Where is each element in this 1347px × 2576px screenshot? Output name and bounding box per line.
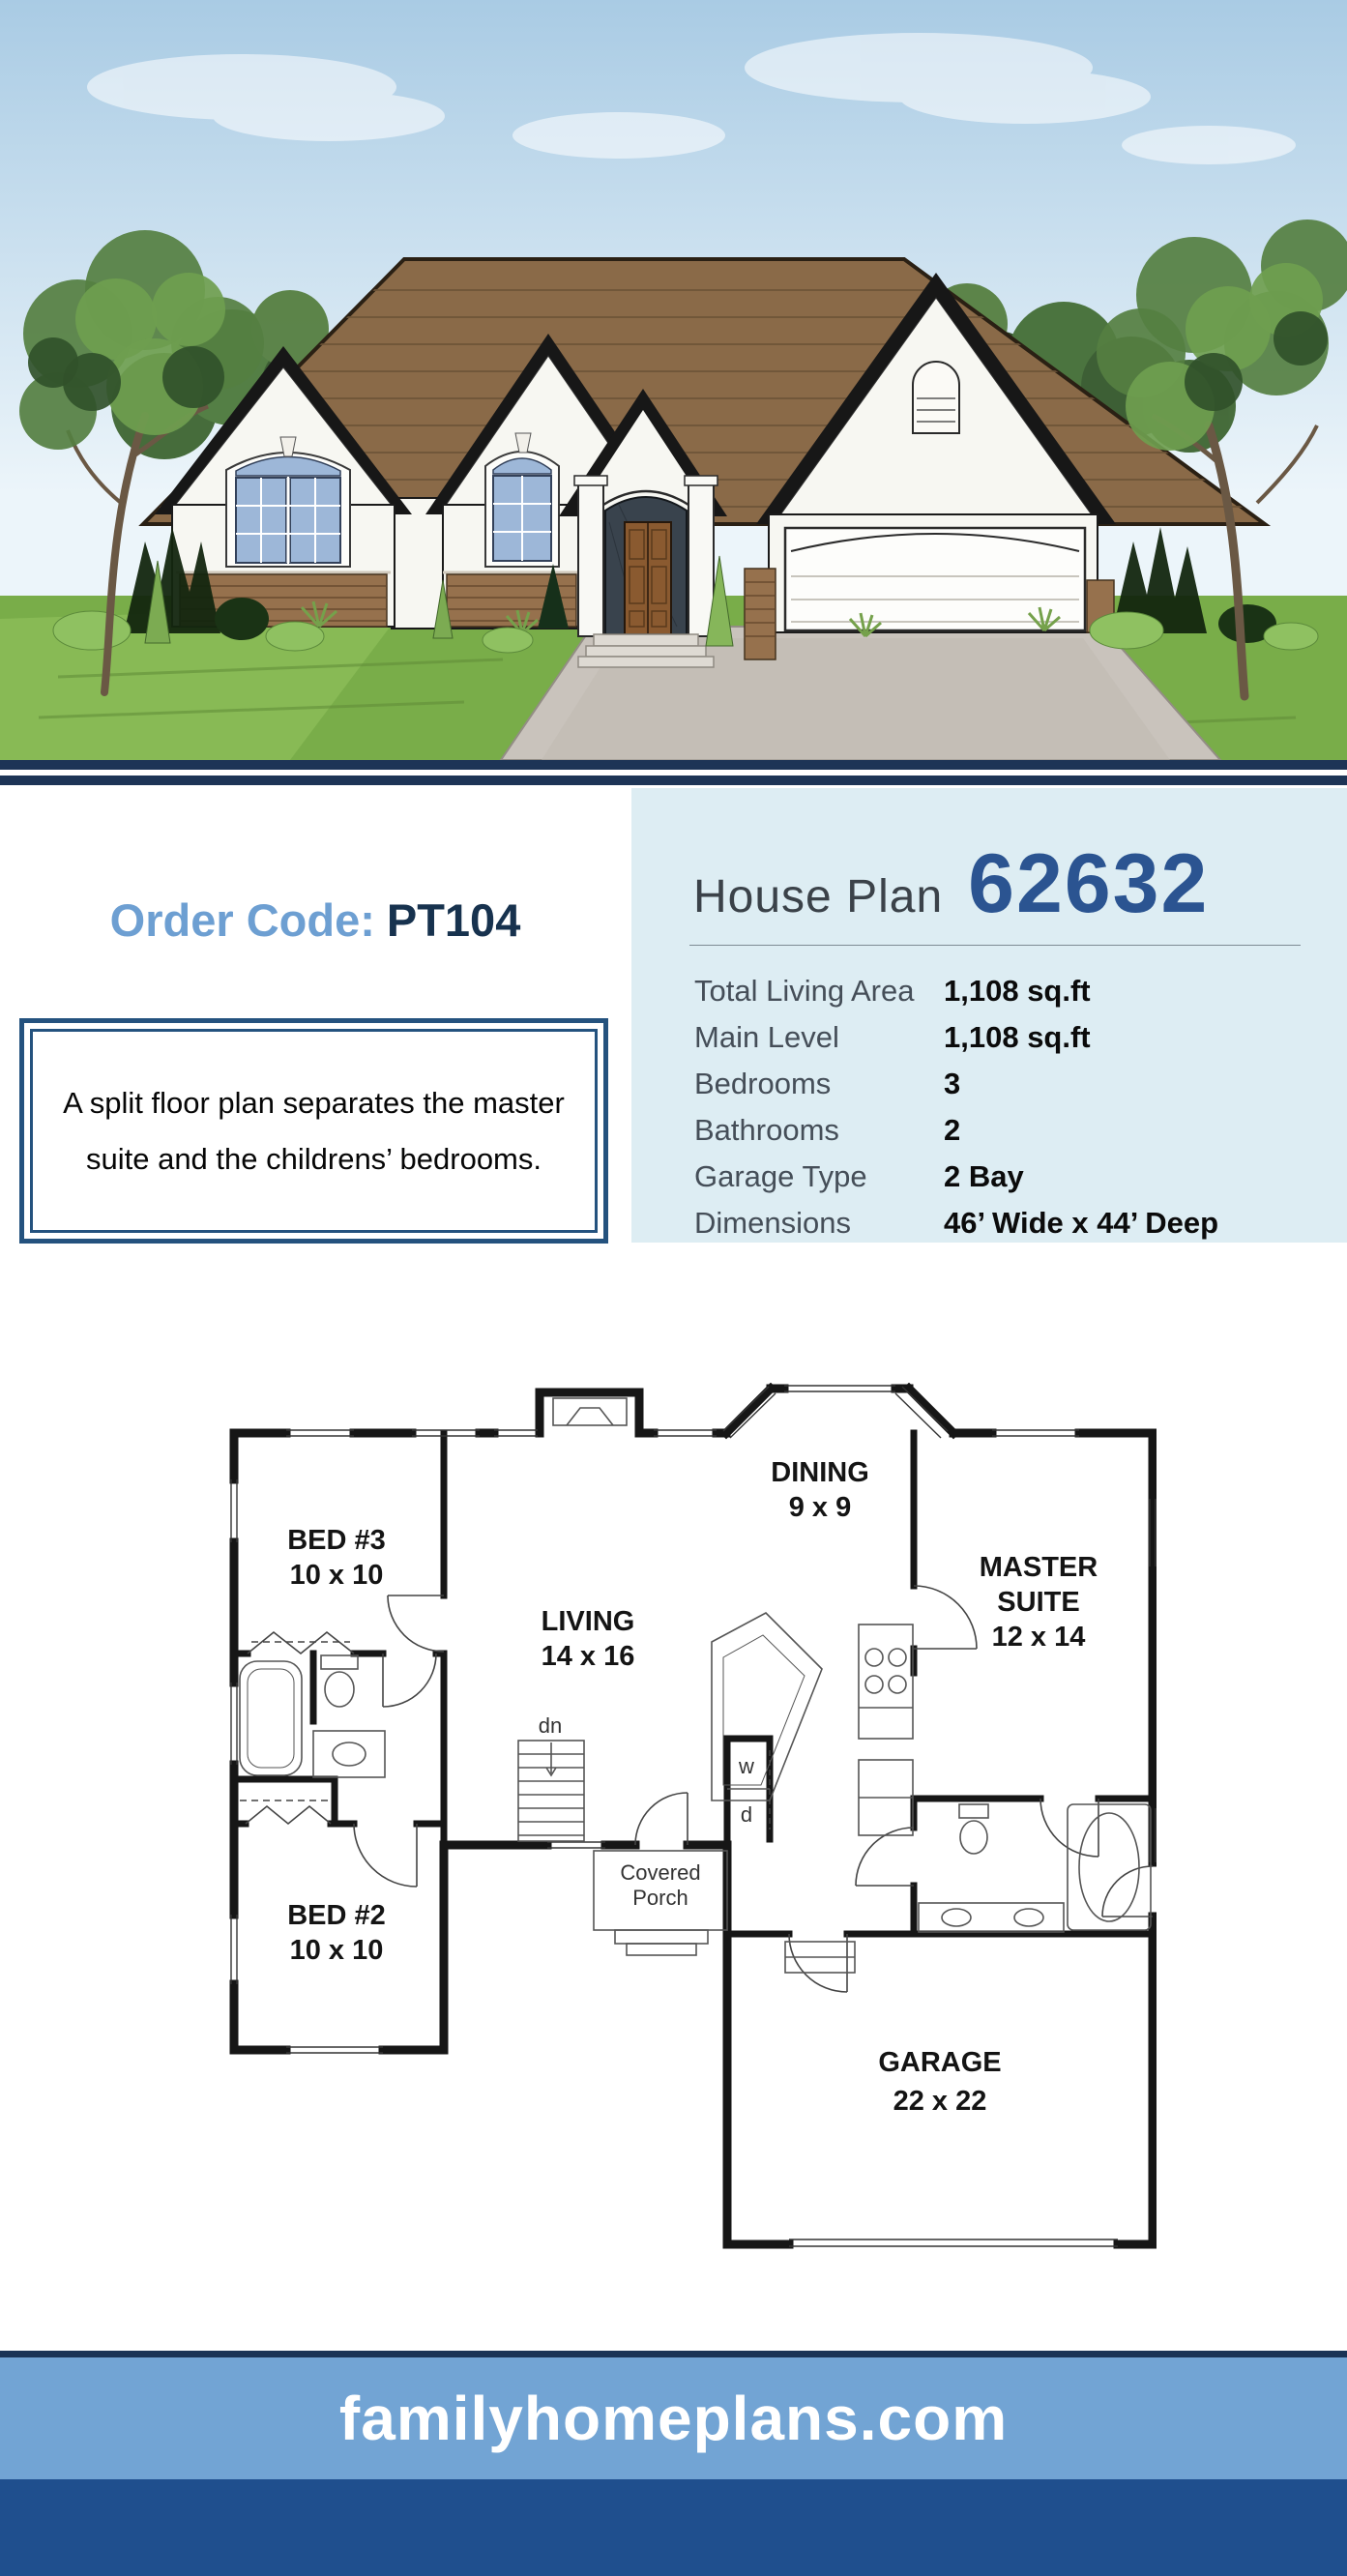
room-label-dining: DINING xyxy=(771,1457,869,1488)
footer-accent-line xyxy=(0,2351,1347,2357)
order-code-value: PT104 xyxy=(387,894,520,946)
room-size-garage: 22 x 22 xyxy=(893,2086,987,2117)
stairs-label: dn xyxy=(539,1713,562,1738)
house-rendering xyxy=(0,0,1347,760)
spec-row-bathrooms: Bathrooms2 xyxy=(694,1107,1313,1154)
spec-row-main-level: Main Level1,108 sq.ft xyxy=(694,1014,1313,1061)
room-label-bed2: BED #2 xyxy=(287,1900,386,1931)
room-label-master-2: SUITE xyxy=(997,1587,1079,1618)
room-label-bed3: BED #3 xyxy=(287,1525,386,1556)
section-divider xyxy=(0,760,1347,785)
entry-column xyxy=(688,482,714,636)
stairs xyxy=(518,1741,584,1841)
order-code: Order Code:PT104 xyxy=(19,894,611,947)
floor-plan-drawing: BED #3 10 x 10 LIVING 14 x 16 DINING 9 x… xyxy=(228,1383,1157,2253)
room-label-living: LIVING xyxy=(542,1606,635,1637)
description-box: A split floor plan separates the master … xyxy=(19,1018,608,1244)
description-text: A split floor plan separates the master … xyxy=(33,1075,595,1186)
footer-bottom-band xyxy=(0,2479,1347,2576)
exterior-walls xyxy=(234,1389,1153,2244)
garden-tub xyxy=(1079,1813,1139,1921)
sink xyxy=(333,1742,366,1766)
house-rendering-art xyxy=(0,0,1347,760)
room-size-bed3: 10 x 10 xyxy=(290,1560,384,1591)
tub-platform xyxy=(1068,1804,1151,1930)
room-size-bed2: 10 x 10 xyxy=(290,1935,384,1966)
fireplace xyxy=(553,1398,627,1425)
room-label-master-1: MASTER xyxy=(980,1552,1098,1583)
floor-plan: BED #3 10 x 10 LIVING 14 x 16 DINING 9 x… xyxy=(228,1383,1157,2253)
range-counter xyxy=(859,1625,913,1739)
panel-divider-line xyxy=(689,945,1301,946)
washer-label: w xyxy=(738,1754,754,1778)
porch-label-2: Porch xyxy=(632,1886,688,1910)
spec-row-dimensions: Dimensions46’ Wide x 44’ Deep xyxy=(694,1200,1313,1246)
sink xyxy=(942,1909,971,1926)
divider-bar-bottom xyxy=(0,776,1347,785)
plan-info-panel: House Plan 62632 Total Living Area1,108 … xyxy=(631,788,1347,1243)
spec-row-bedrooms: Bedrooms3 xyxy=(694,1061,1313,1107)
master-bath-fixtures xyxy=(919,1804,1151,1932)
bathtub xyxy=(240,1661,302,1775)
porch-label-1: Covered xyxy=(620,1860,700,1885)
interior-walls xyxy=(234,1433,1153,1934)
garage-landing xyxy=(785,1942,855,1973)
room-size-dining: 9 x 9 xyxy=(789,1492,852,1523)
entry-steps xyxy=(578,634,714,667)
toilet xyxy=(325,1672,354,1707)
sink xyxy=(1014,1909,1043,1926)
spec-row-garage-type: Garage Type2 Bay xyxy=(694,1154,1313,1200)
toilet-tank xyxy=(321,1655,358,1669)
room-label-garage: GARAGE xyxy=(878,2047,1001,2078)
divider-bar-top xyxy=(0,760,1347,770)
house-plan-flyer: Order Code:PT104 A split floor plan sepa… xyxy=(0,0,1347,2576)
description-box-inner: A split floor plan separates the master … xyxy=(30,1029,598,1233)
dryer-label: d xyxy=(741,1802,752,1827)
vanity xyxy=(313,1731,385,1777)
room-size-master: 12 x 14 xyxy=(992,1622,1086,1653)
panel-title: House Plan 62632 xyxy=(693,836,1209,932)
footer-site-name: familyhomeplans.com xyxy=(339,2384,1008,2453)
spec-row-total-living-area: Total Living Area1,108 sq.ft xyxy=(694,968,1313,1014)
plan-number: 62632 xyxy=(968,836,1209,932)
room-size-living: 14 x 16 xyxy=(542,1641,635,1672)
toilet xyxy=(960,1821,987,1854)
windows xyxy=(231,1386,1156,2246)
spec-table: Total Living Area1,108 sq.ft Main Level1… xyxy=(694,968,1313,1246)
louver-vent xyxy=(913,362,959,433)
footer: familyhomeplans.com xyxy=(0,2357,1347,2479)
toilet-tank xyxy=(959,1804,988,1818)
entry-column xyxy=(578,482,603,636)
order-code-label: Order Code: xyxy=(110,894,375,946)
double-vanity xyxy=(919,1903,1064,1932)
front-door xyxy=(625,522,671,634)
plan-title-label: House Plan xyxy=(693,870,943,923)
